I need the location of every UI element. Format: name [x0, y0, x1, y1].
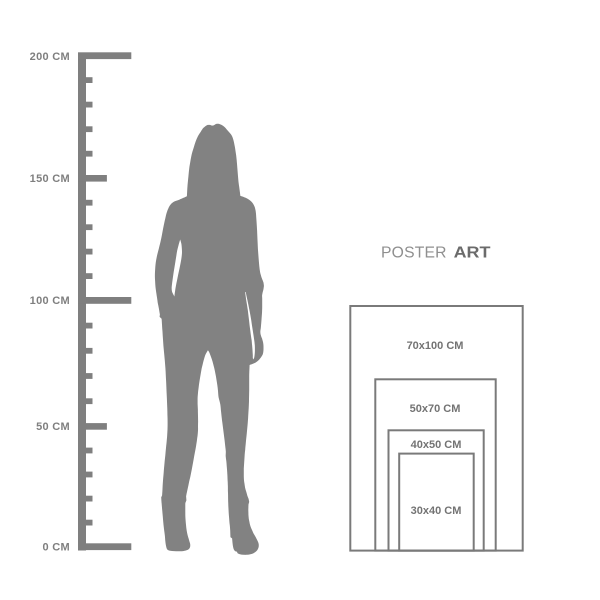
svg-text:40x50 CM: 40x50 CM: [411, 439, 462, 451]
svg-text:POSTER: POSTER: [381, 245, 447, 262]
svg-text:30x40 CM: 30x40 CM: [411, 505, 462, 517]
svg-text:50x70 CM: 50x70 CM: [410, 403, 461, 415]
svg-text:ART: ART: [454, 245, 491, 262]
svg-text:50 CM: 50 CM: [36, 421, 70, 433]
svg-text:200 CM: 200 CM: [30, 51, 70, 63]
svg-text:150 CM: 150 CM: [30, 173, 70, 185]
svg-text:0 CM: 0 CM: [43, 541, 70, 553]
svg-text:70x100 CM: 70x100 CM: [407, 340, 464, 352]
svg-text:100 CM: 100 CM: [30, 295, 70, 307]
